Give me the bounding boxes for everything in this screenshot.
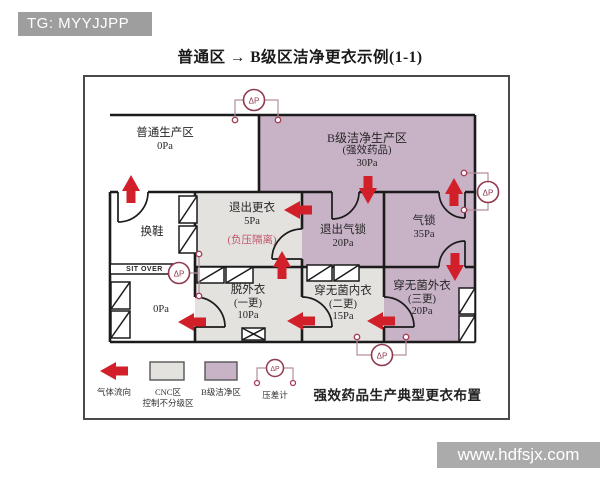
room-label-general-production: 普通生产区 0Pa: [115, 127, 215, 153]
legend-airflow-label: 气体流向: [86, 387, 142, 398]
pass-box: [242, 328, 265, 340]
room-label-sterile-outer: 穿无菌外衣 (三更) 20Pa: [382, 280, 462, 318]
legend-gauge-icon: ΔP: [255, 360, 296, 386]
watermark-badge: TG: MYYJJPP: [18, 12, 152, 36]
room-label-exit-gowning: 退出更衣 5Pa: [202, 202, 302, 228]
room-label-remove-outerwear: 脱外衣 (一更) 10Pa: [200, 284, 296, 322]
plan-caption: 强效药品生产典型更衣布置: [310, 388, 485, 404]
gauge-label: ΔP: [483, 189, 494, 198]
bench-label: SIT OVER: [117, 265, 172, 275]
room-label-sterile-inner: 穿无菌内衣 (二更) 15Pa: [302, 285, 384, 323]
legend-grade-b-label: B级洁净区: [193, 387, 249, 398]
legend-cnc-swatch: [150, 362, 184, 380]
room-label-corridor: 0Pa: [131, 304, 191, 316]
gauge-label: ΔP: [270, 366, 280, 373]
legend-grade-b-swatch: [205, 362, 237, 380]
diagram-title: 普通区 → B级区洁净更衣示例(1-1): [0, 45, 600, 67]
room-label-exit-airlock: 退出气锁 20Pa: [302, 224, 384, 250]
legend-symbols: ΔP: [100, 360, 296, 386]
watermark-banner: www.hdfsjx.com: [437, 442, 600, 468]
legend-airflow-icon: [100, 362, 128, 380]
room-label-grade-b-production: B级洁净生产区 (强效药品) 30Pa: [282, 131, 452, 170]
diagram-frame: ΔP ΔP ΔP: [83, 75, 510, 420]
gauge-label: ΔP: [377, 352, 388, 361]
legend-gauge-label: 压差计: [247, 390, 303, 401]
room-label-airlock: 气锁 35Pa: [384, 215, 464, 241]
legend-cnc-label: CNC区 控制不分级区: [139, 387, 197, 408]
room-label-shoe-change: 换鞋: [117, 226, 187, 240]
page: TG: MYYJJPP 普通区 → B级区洁净更衣示例(1-1): [0, 0, 600, 480]
gauge-label: ΔP: [249, 97, 260, 106]
negative-pressure-note: (负压隔离): [202, 235, 302, 247]
gauge-label: ΔP: [174, 270, 185, 279]
